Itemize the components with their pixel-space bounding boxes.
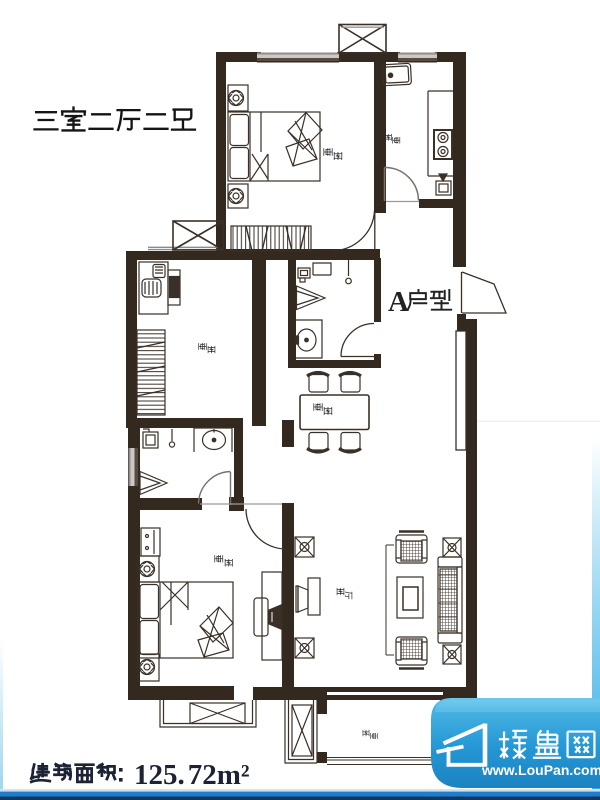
svg-text:www.LouPan.com: www.LouPan.com <box>481 762 600 778</box>
svg-text:125.72m²: 125.72m² <box>134 759 250 791</box>
svg-text:A: A <box>388 286 409 318</box>
